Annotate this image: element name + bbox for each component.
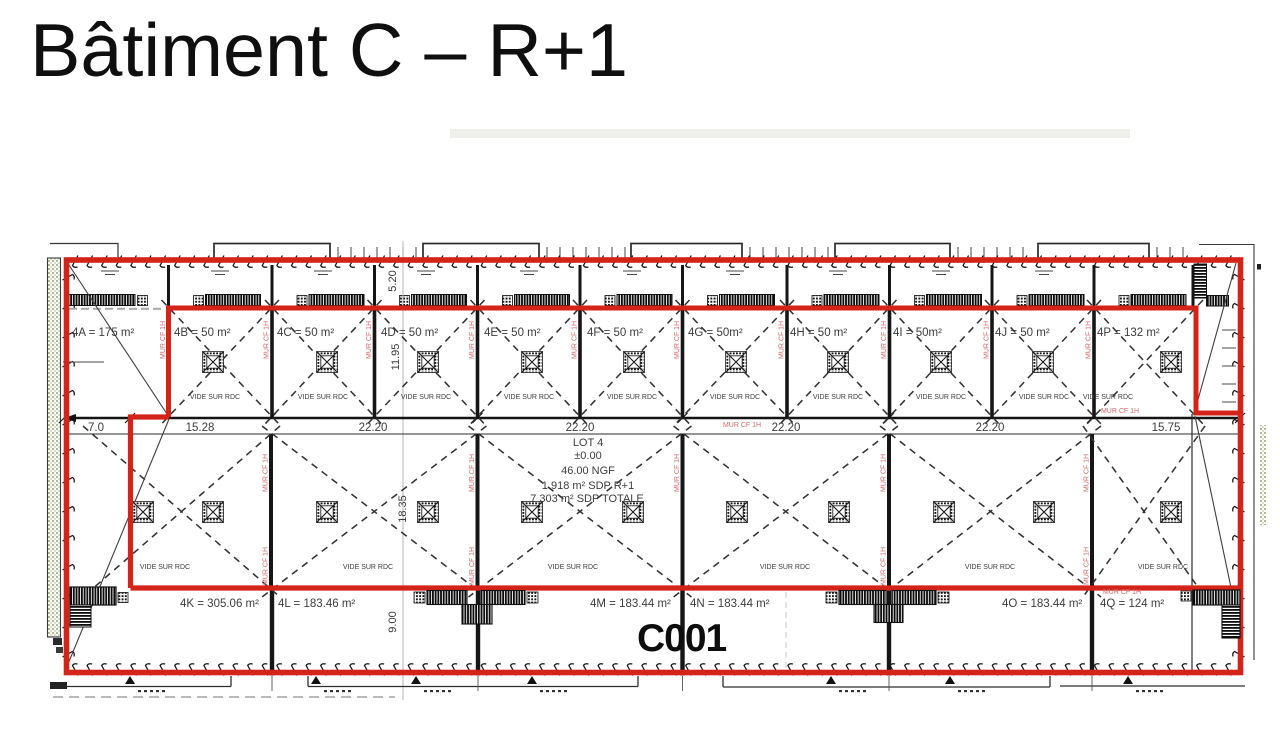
svg-text:MUR CF 1H: MUR CF 1H	[1103, 589, 1141, 596]
svg-text:MUR CF 1H: MUR CF 1H	[779, 321, 786, 359]
svg-text:4D = 50 m²: 4D = 50 m²	[381, 327, 438, 339]
svg-text:11.95: 11.95	[390, 344, 402, 371]
svg-text:9.00: 9.00	[387, 611, 399, 632]
svg-text:4K = 305.06 m²: 4K = 305.06 m²	[180, 598, 259, 610]
svg-text:VIDE SUR RDC: VIDE SUR RDC	[965, 564, 1015, 571]
svg-text:MUR CF 1H: MUR CF 1H	[469, 454, 476, 492]
svg-text:4M = 183.44 m²: 4M = 183.44 m²	[590, 598, 671, 610]
svg-text:±0.00: ±0.00	[574, 450, 601, 462]
svg-text:MUR CF 1H: MUR CF 1H	[881, 321, 888, 359]
svg-text:4I = 50m²: 4I = 50m²	[893, 327, 942, 339]
svg-text:1 918 m² SDP R+1: 1 918 m² SDP R+1	[542, 480, 634, 492]
svg-text:MUR CF 1H: MUR CF 1H	[469, 547, 476, 585]
svg-text:VIDE SUR RDC: VIDE SUR RDC	[298, 394, 348, 401]
svg-text:MUR CF 1H: MUR CF 1H	[674, 321, 681, 359]
svg-text:VIDE SUR RDC: VIDE SUR RDC	[190, 394, 240, 401]
svg-text:VIDE SUR RDC: VIDE SUR RDC	[607, 394, 657, 401]
svg-text:4E = 50 m²: 4E = 50 m²	[484, 327, 541, 339]
svg-text:22.20: 22.20	[359, 422, 388, 434]
svg-text:4J = 50 m²: 4J = 50 m²	[995, 327, 1050, 339]
svg-text:18.35: 18.35	[397, 495, 409, 523]
svg-text:4B = 50 m²: 4B = 50 m²	[174, 327, 231, 339]
svg-text:VIDE SUR RDC: VIDE SUR RDC	[548, 564, 598, 571]
svg-text:MUR CF 1H: MUR CF 1H	[1084, 547, 1091, 585]
svg-text:4C = 50 m²: 4C = 50 m²	[277, 327, 334, 339]
svg-text:MUR CF 1H: MUR CF 1H	[469, 321, 476, 359]
svg-text:MUR CF 1H: MUR CF 1H	[881, 547, 888, 585]
svg-text:15.28: 15.28	[186, 422, 215, 434]
svg-text:4P = 132 m²: 4P = 132 m²	[1097, 327, 1160, 339]
svg-text:22.20: 22.20	[976, 422, 1005, 434]
svg-text:MUR CF 1H: MUR CF 1H	[1086, 321, 1093, 359]
svg-text:VIDE SUR RDC: VIDE SUR RDC	[710, 394, 760, 401]
svg-text:VIDE SUR RDC: VIDE SUR RDC	[760, 564, 810, 571]
svg-text:MUR CF 1H: MUR CF 1H	[723, 422, 761, 429]
svg-text:4G = 50m²: 4G = 50m²	[688, 327, 743, 339]
svg-text:VIDE SUR RDC: VIDE SUR RDC	[504, 394, 554, 401]
svg-text:Bâtiment C – R+1: Bâtiment C – R+1	[30, 8, 628, 92]
svg-text:4F = 50 m²: 4F = 50 m²	[587, 327, 643, 339]
svg-text:LOT 4: LOT 4	[573, 437, 603, 449]
svg-text:4O = 183.44 m²: 4O = 183.44 m²	[1002, 598, 1082, 610]
svg-text:MUR CF 1H: MUR CF 1H	[264, 321, 271, 359]
svg-text:5.20: 5.20	[387, 270, 399, 291]
svg-text:VIDE SUR RDC: VIDE SUR RDC	[916, 394, 966, 401]
svg-text:MUR CF 1H: MUR CF 1H	[572, 321, 579, 359]
svg-text:22.20: 22.20	[566, 422, 595, 434]
svg-text:MUR CF 1H: MUR CF 1H	[984, 321, 991, 359]
svg-text:MUR CF 1H: MUR CF 1H	[263, 454, 270, 492]
svg-text:VIDE SUR RDC: VIDE SUR RDC	[1083, 394, 1133, 401]
svg-text:7 303 m² SDP TOTALE: 7 303 m² SDP TOTALE	[530, 493, 644, 505]
svg-text:15.75: 15.75	[1152, 422, 1181, 434]
svg-text:VIDE SUR RDC: VIDE SUR RDC	[1138, 564, 1188, 571]
svg-text:MUR CF 1H: MUR CF 1H	[1084, 454, 1091, 492]
svg-text:MUR CF 1H: MUR CF 1H	[160, 321, 167, 359]
svg-text:MUR CF 1H: MUR CF 1H	[881, 454, 888, 492]
svg-text:VIDE SUR RDC: VIDE SUR RDC	[401, 394, 451, 401]
svg-text:4L = 183.46 m²: 4L = 183.46 m²	[278, 598, 355, 610]
svg-text:4Q = 124 m²: 4Q = 124 m²	[1100, 598, 1164, 610]
svg-text:22.20: 22.20	[772, 422, 801, 434]
svg-text:7.0: 7.0	[88, 422, 104, 434]
svg-text:VIDE SUR RDC: VIDE SUR RDC	[343, 564, 393, 571]
svg-text:MUR CF 1H: MUR CF 1H	[366, 321, 373, 359]
svg-text:4N = 183.44 m²: 4N = 183.44 m²	[690, 598, 770, 610]
svg-text:4A = 175 m²: 4A = 175 m²	[72, 327, 134, 339]
svg-text:4H = 50 m²: 4H = 50 m²	[790, 327, 847, 339]
svg-text:VIDE SUR RDC: VIDE SUR RDC	[140, 564, 190, 571]
svg-text:VIDE SUR RDC: VIDE SUR RDC	[813, 394, 863, 401]
svg-text:C001: C001	[637, 617, 727, 660]
svg-text:VIDE SUR RDC: VIDE SUR RDC	[1019, 394, 1069, 401]
svg-text:MUR CF 1H: MUR CF 1H	[263, 547, 270, 585]
svg-text:46.00 NGF: 46.00 NGF	[561, 465, 615, 477]
svg-text:MUR CF 1H: MUR CF 1H	[674, 454, 681, 492]
svg-text:MUR CF 1H: MUR CF 1H	[1101, 408, 1139, 415]
